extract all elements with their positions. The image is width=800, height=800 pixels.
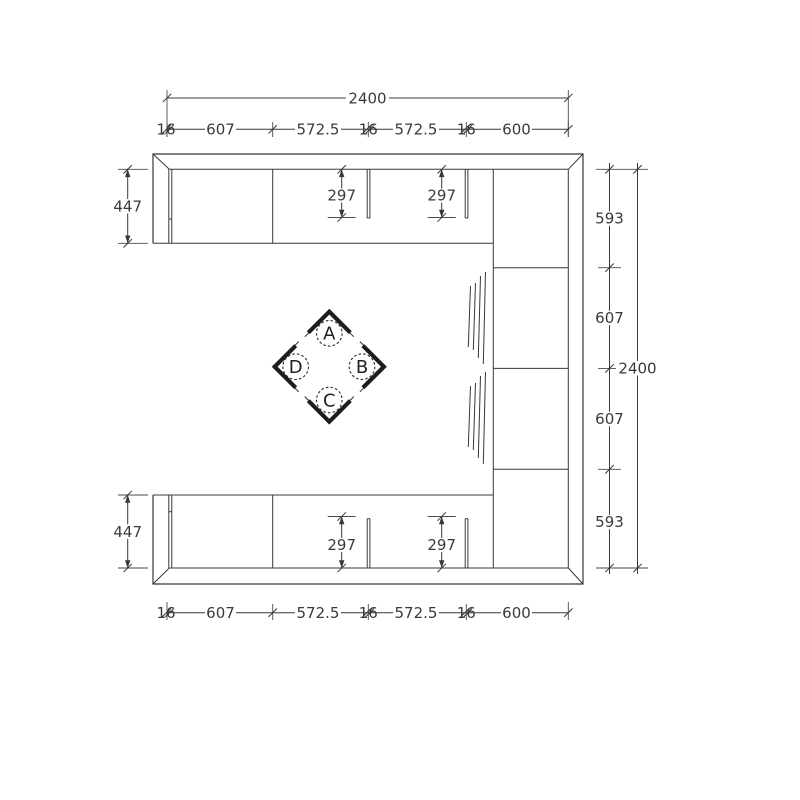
bottom-cabinet-run xyxy=(169,495,468,568)
dim-label-right-593a: 593 xyxy=(595,210,624,228)
dim-label-bot-seg-16c: 16 xyxy=(457,604,476,622)
dimension-left-bottom-depth: 447 xyxy=(112,491,148,572)
dimension-top-partition-1: 297 xyxy=(327,165,357,222)
dim-label-bot-seg-16a: 16 xyxy=(156,604,175,622)
view-marker-label-b: B xyxy=(356,357,368,378)
dim-label-top-seg-600: 600 xyxy=(502,121,531,139)
dimension-bottom-segments: 16 607 572.5 16 572.5 16 600 xyxy=(156,602,572,622)
right-cabinet-column xyxy=(493,268,568,470)
cabinet-plan-drawing: 2400 16 607 572.5 16 572.5 16 600 xyxy=(0,0,800,800)
floor-plan-page: 2400 16 607 572.5 16 572.5 16 600 xyxy=(0,0,800,800)
top-cabinet-run xyxy=(169,169,468,243)
dim-label-bot-seg-5725b: 572.5 xyxy=(395,604,438,622)
dimension-bottom-partition-1: 297 xyxy=(327,512,357,572)
dim-label-bot-seg-600: 600 xyxy=(502,604,531,622)
dim-label-left-top-447: 447 xyxy=(113,198,142,216)
dimension-top-segments: 16 607 572.5 16 572.5 16 600 xyxy=(156,121,572,139)
dim-label-top-seg-607: 607 xyxy=(206,121,235,139)
view-marker-label-c: C xyxy=(323,390,336,411)
dimension-top-partition-2: 297 xyxy=(427,165,457,222)
dim-label-top-seg-16b: 16 xyxy=(359,121,378,139)
dim-label-bot-297b: 297 xyxy=(427,536,456,554)
dim-label-top-overall: 2400 xyxy=(348,89,386,107)
dim-label-left-bottom-447: 447 xyxy=(113,523,142,541)
dim-label-right-607a: 607 xyxy=(595,309,624,327)
dim-label-top-seg-5725b: 572.5 xyxy=(395,121,438,139)
dim-label-bot-seg-607: 607 xyxy=(206,604,235,622)
dim-label-bot-seg-5725a: 572.5 xyxy=(297,604,340,622)
dim-label-top-seg-5725a: 572.5 xyxy=(297,121,340,139)
dim-label-bot-297a: 297 xyxy=(327,536,356,554)
view-marker-label-d: D xyxy=(289,357,303,378)
dim-label-bot-seg-16b: 16 xyxy=(359,604,378,622)
shelf-front-lines-lower xyxy=(468,372,485,464)
dim-label-top-297b: 297 xyxy=(427,187,456,205)
dim-label-top-297a: 297 xyxy=(327,187,356,205)
dimension-left-top-depth: 447 xyxy=(112,165,148,247)
dimension-bottom-partition-2: 297 xyxy=(427,512,457,572)
dim-label-right-593b: 593 xyxy=(595,513,624,531)
dim-label-top-seg-16c: 16 xyxy=(457,121,476,139)
dim-label-right-overall-2400: 2400 xyxy=(618,360,656,378)
shelf-front-lines-upper xyxy=(468,272,485,364)
view-marker-label-a: A xyxy=(323,324,336,345)
dim-label-right-607b: 607 xyxy=(595,410,624,428)
view-markers: A B C D xyxy=(274,312,385,422)
dim-label-top-seg-16a: 16 xyxy=(156,121,175,139)
